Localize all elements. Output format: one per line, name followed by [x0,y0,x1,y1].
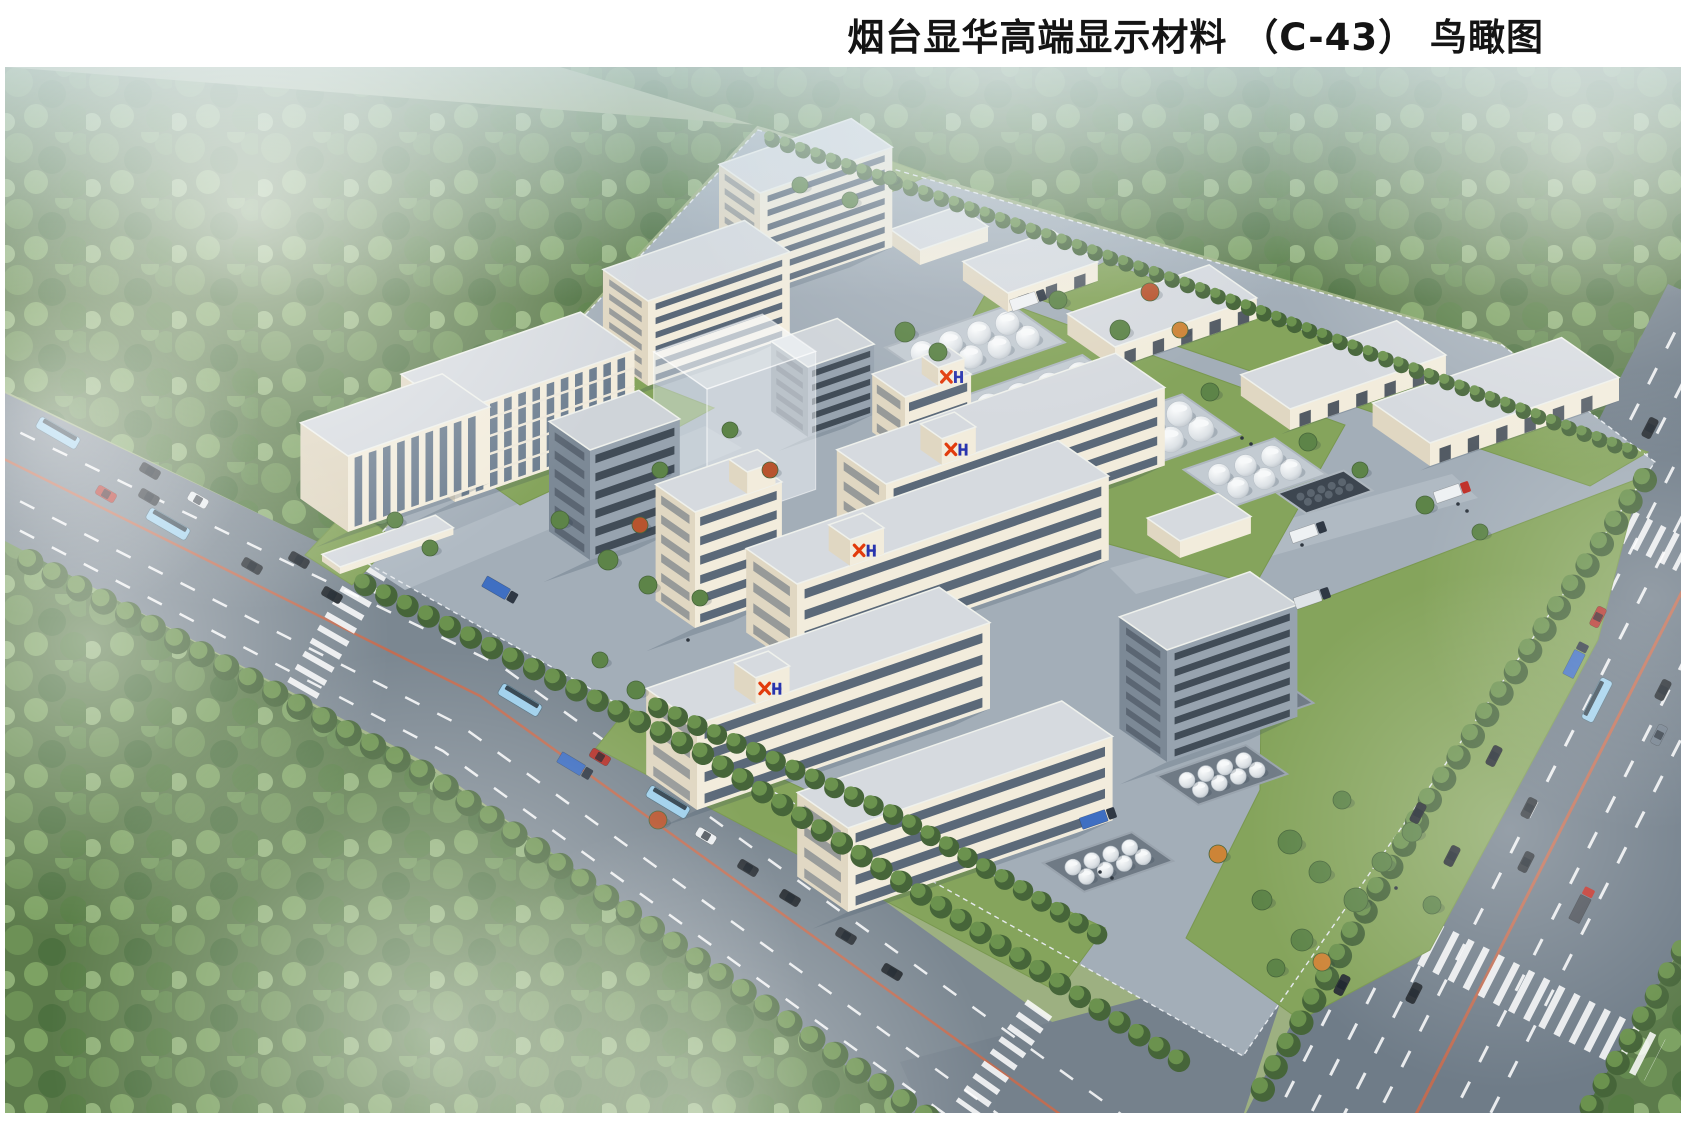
tree [632,517,648,533]
person [686,638,690,642]
scene-svg [5,67,1681,1113]
person [1110,876,1114,880]
person [1300,543,1304,547]
tree [639,576,657,594]
tree [762,462,778,478]
title-banner: 烟台显华高端显示材料 （C-43） 鸟瞰图 [0,0,1686,67]
tree [627,681,645,699]
person [1240,436,1244,440]
tree [1201,383,1219,401]
page: 烟台显华高端显示材料 （C-43） 鸟瞰图 [0,0,1686,1125]
tree [598,550,618,570]
tree [1267,959,1285,977]
page-title: 烟台显华高端显示材料 （C-43） 鸟瞰图 [847,7,1544,61]
tree [1352,462,1368,478]
tree [1209,845,1227,863]
person [1249,442,1253,446]
person [1098,870,1102,874]
tree [1299,433,1317,451]
tree [551,511,569,529]
tree [592,652,608,668]
tree [692,590,708,606]
tree [722,422,738,438]
tree [652,462,668,478]
tree [1416,496,1434,514]
